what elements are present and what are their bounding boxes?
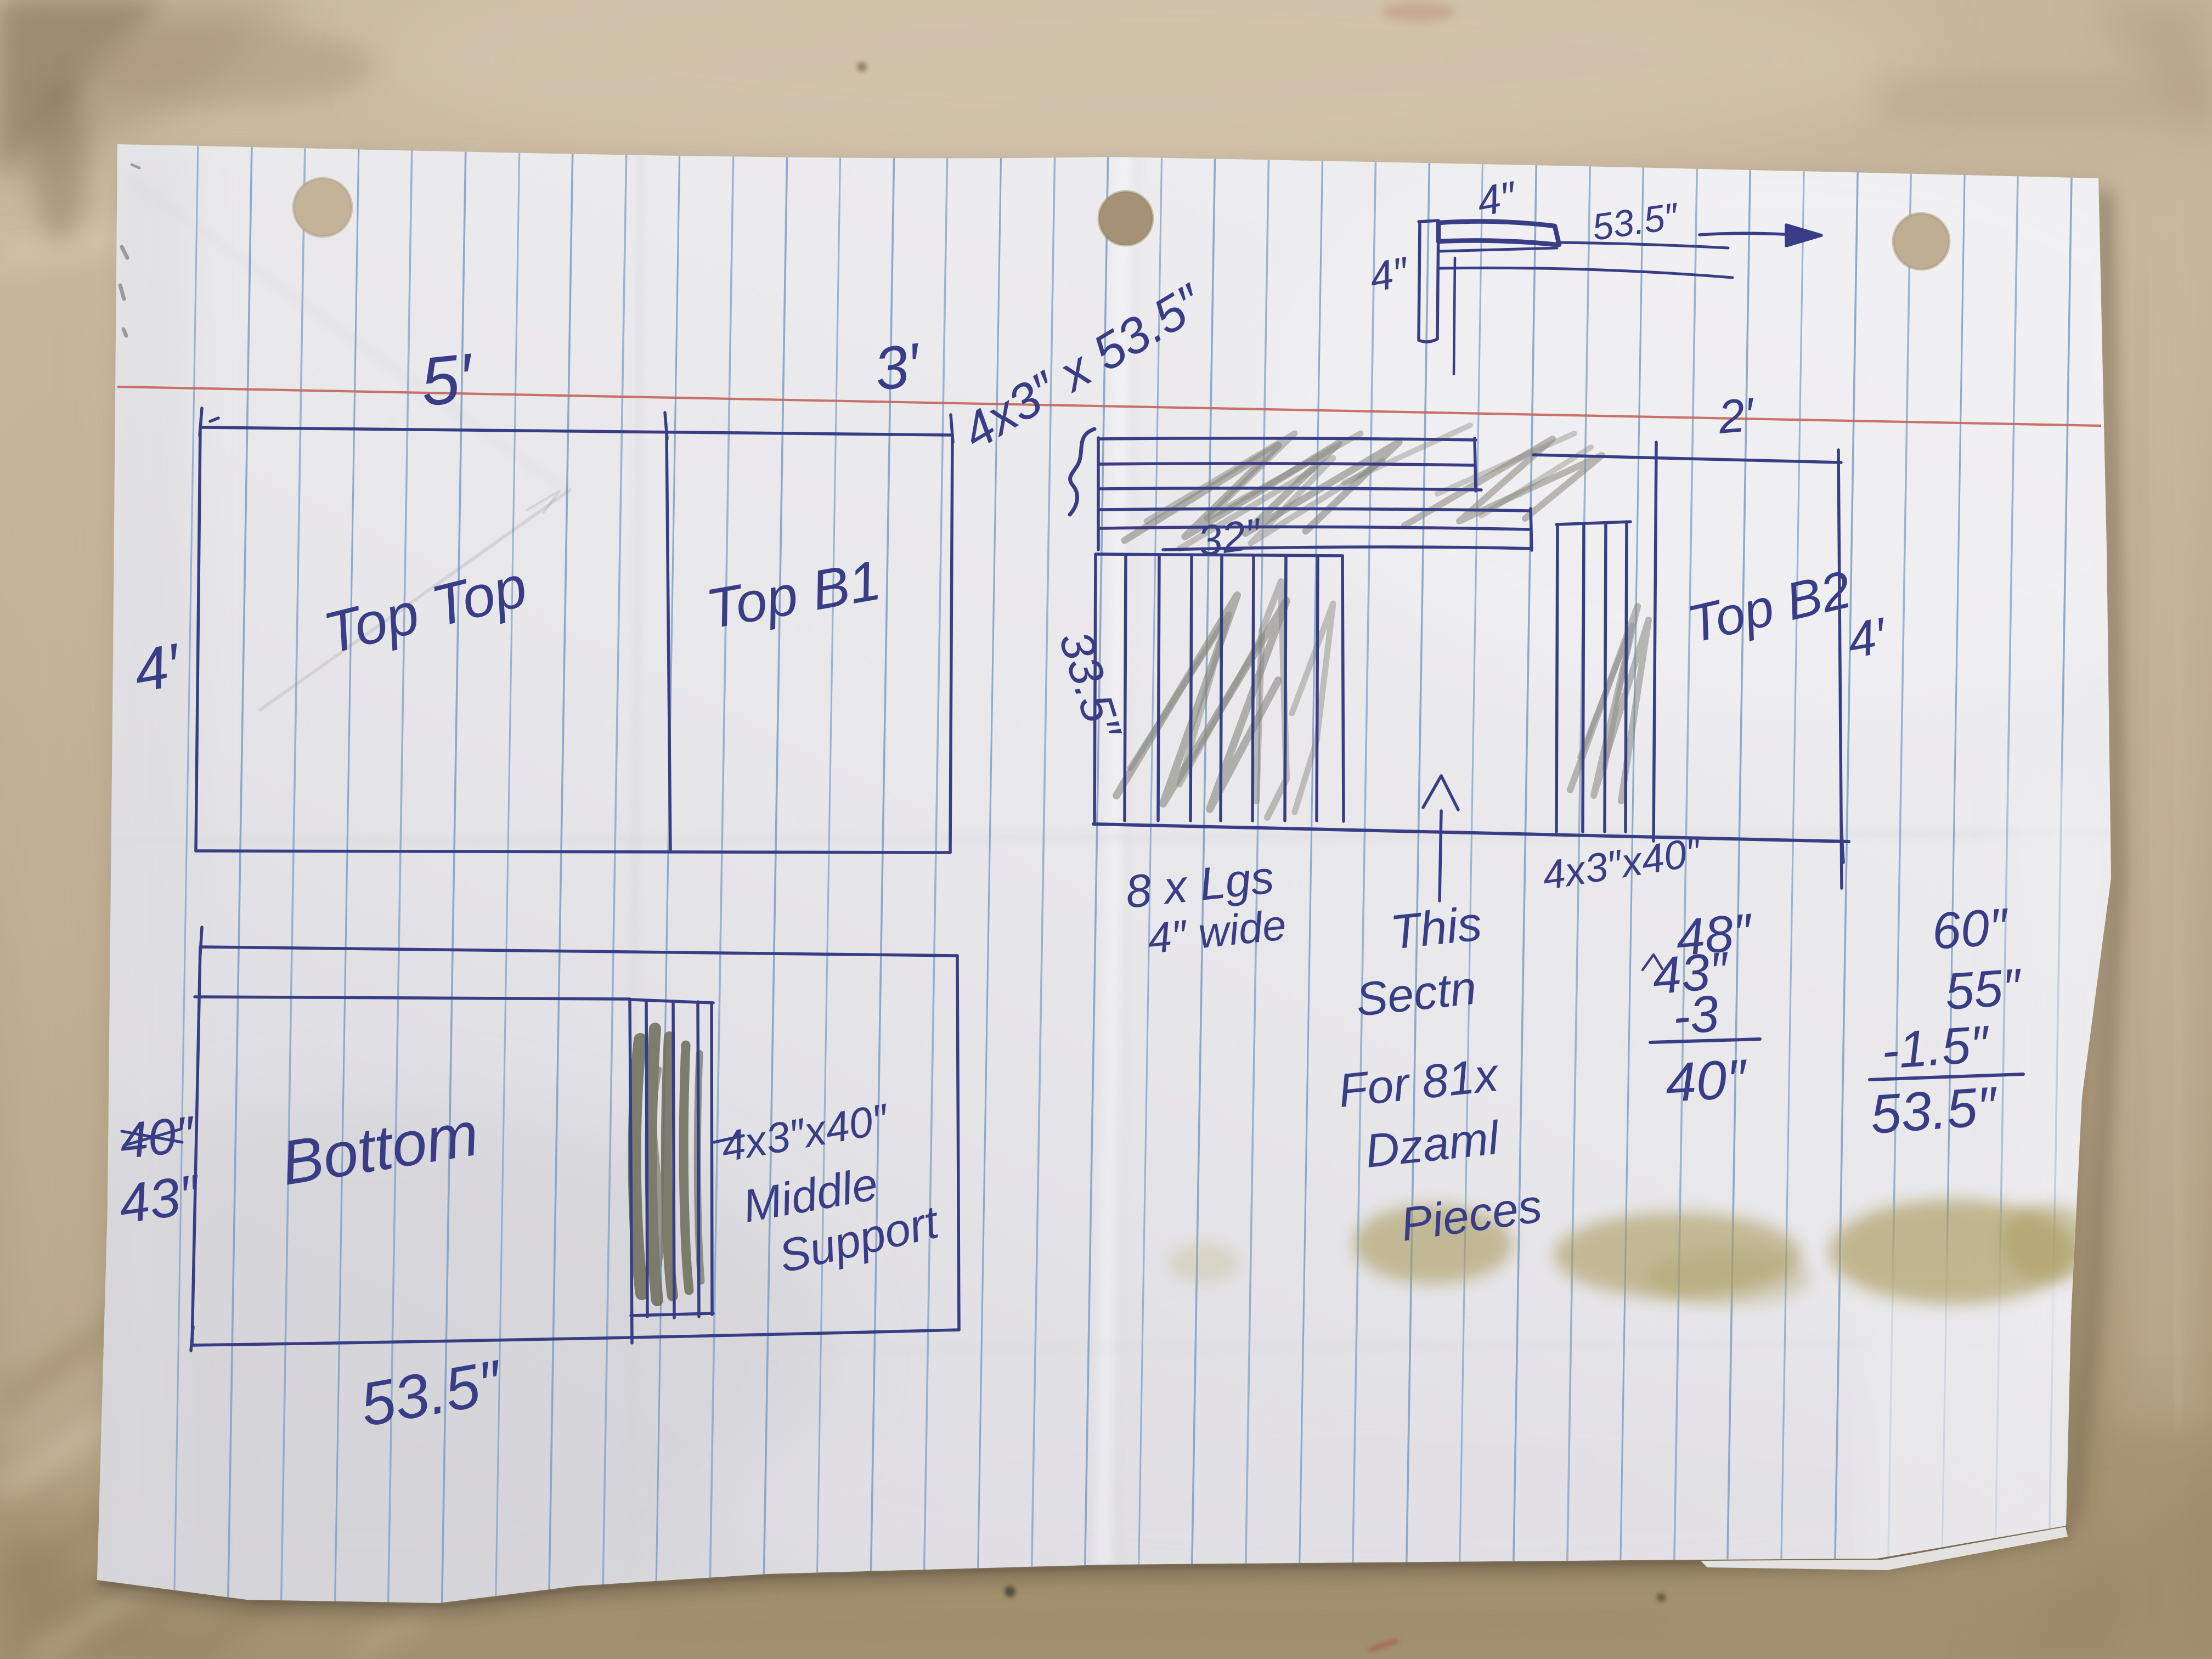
- svg-text:32″: 32″: [1195, 509, 1265, 565]
- svg-text:43″: 43″: [115, 1163, 205, 1235]
- svg-text:-1.5″: -1.5″: [1880, 1014, 1992, 1080]
- svg-text:60″: 60″: [1930, 897, 2011, 960]
- svg-text:55″: 55″: [1943, 957, 2024, 1020]
- svg-text:5′: 5′: [417, 340, 478, 421]
- svg-text:40″: 40″: [117, 1106, 198, 1170]
- svg-text:-3: -3: [1671, 984, 1721, 1046]
- svg-text:40″: 40″: [1664, 1048, 1750, 1114]
- svg-text:53.5″: 53.5″: [1869, 1075, 2001, 1145]
- svg-text:2′: 2′: [1716, 388, 1757, 444]
- svg-text:This: This: [1388, 896, 1485, 960]
